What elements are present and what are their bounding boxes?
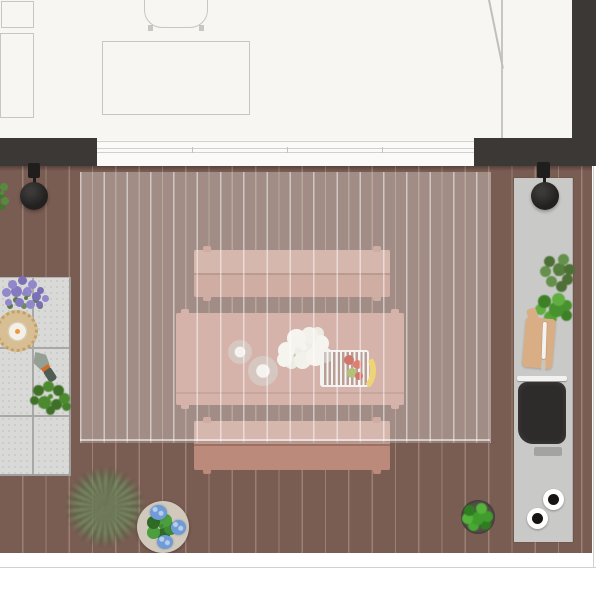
door-track-line: [97, 148, 474, 149]
bench-foot: [373, 468, 381, 474]
grill-body: [518, 382, 566, 444]
lamp-bulb: [531, 182, 559, 210]
edge-plant[interactable]: [0, 183, 12, 215]
hydrangea-leaves: [159, 524, 164, 529]
grill-tray: [534, 447, 562, 456]
grill[interactable]: [516, 376, 568, 458]
chair-foot: [148, 25, 153, 31]
herb-foliage: [48, 394, 53, 399]
bench-seam: [194, 444, 390, 446]
burner-knob[interactable]: [543, 489, 564, 510]
blue-hydrangea: [171, 520, 186, 535]
candle-flame: [15, 329, 20, 334]
lamp-mount: [537, 162, 550, 178]
knife-blade: [542, 322, 547, 359]
wall-drop-shadow: [0, 166, 592, 171]
door-track-line: [97, 141, 474, 142]
pergola-canopy[interactable]: [80, 172, 491, 443]
wall-right: [572, 0, 596, 166]
herb-plant[interactable]: [30, 378, 72, 416]
desk[interactable]: [102, 41, 250, 115]
flower-side-table[interactable]: [137, 501, 189, 553]
bench-foot: [203, 468, 211, 474]
bottom-margin: [0, 553, 600, 600]
lavender-blooms: [22, 291, 27, 296]
page-border-line: [593, 166, 594, 568]
sliding-glass-wall[interactable]: [97, 140, 474, 166]
counter-plant-feathery[interactable]: [540, 252, 574, 294]
door-panel-divider: [382, 147, 383, 153]
door-panel-divider: [192, 147, 193, 153]
floorplan-scene: [0, 0, 600, 600]
pendant-lamp-right[interactable]: [531, 161, 561, 211]
desk-chair[interactable]: [144, 0, 208, 28]
plant-foliage: [475, 514, 480, 519]
chair-foot: [199, 25, 204, 31]
lamp-mount: [28, 163, 40, 178]
grill-handle: [517, 376, 567, 381]
lavender-stems: [24, 296, 28, 300]
burner-knob[interactable]: [527, 508, 548, 529]
knife-handle: [541, 360, 546, 371]
blue-hydrangea: [157, 535, 173, 549]
door-frame: [501, 0, 503, 139]
terrace-tree[interactable]: [64, 466, 146, 548]
door-track-line: [97, 152, 474, 153]
closet-cabinet[interactable]: [0, 33, 34, 118]
wardrobe-cabinet[interactable]: [1, 1, 34, 28]
page-border-line: [0, 567, 596, 568]
plant-foliage: [555, 271, 560, 276]
edge-plant-foliage: [0, 191, 4, 195]
potted-plant[interactable]: [459, 498, 497, 536]
lamp-bulb: [20, 182, 48, 210]
plant-foliage: [552, 305, 557, 310]
blue-hydrangea: [150, 505, 167, 520]
pendant-lamp-left[interactable]: [20, 162, 50, 212]
door-panel-divider: [287, 147, 288, 153]
